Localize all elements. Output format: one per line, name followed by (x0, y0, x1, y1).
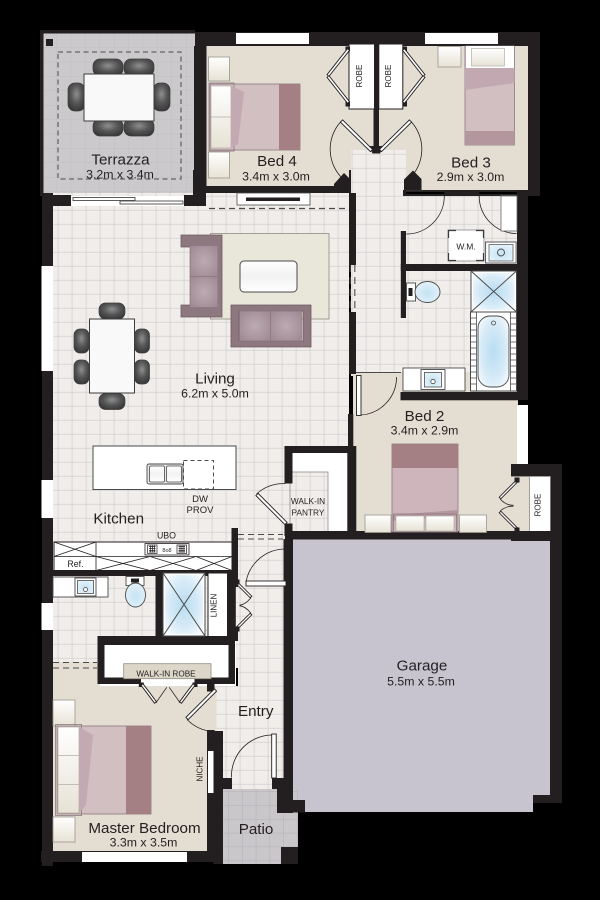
svg-text:8ο8: 8ο8 (162, 548, 171, 554)
svg-text:Ref.: Ref. (67, 559, 83, 569)
svg-text:Terrazza: Terrazza (91, 152, 150, 169)
svg-text:Patio: Patio (239, 821, 274, 838)
svg-text:PANTRY: PANTRY (292, 508, 325, 518)
svg-text:Bed 3: Bed 3 (451, 155, 491, 172)
svg-text:5.5m x 5.5m: 5.5m x 5.5m (387, 675, 455, 689)
svg-text:WALK-IN: WALK-IN (291, 496, 325, 506)
svg-text:DW: DW (192, 494, 208, 505)
svg-text:LINEN: LINEN (210, 593, 219, 617)
svg-text:NICHE: NICHE (196, 757, 205, 782)
svg-text:Living: Living (195, 371, 235, 388)
svg-text:PROV: PROV (187, 505, 215, 516)
svg-text:ROBE: ROBE (384, 65, 393, 88)
svg-text:3.2m x 3.4m: 3.2m x 3.4m (86, 168, 154, 182)
svg-text:3.4m x 3.0m: 3.4m x 3.0m (242, 170, 310, 184)
svg-text:Bed 2: Bed 2 (405, 408, 445, 425)
svg-text:ROBE: ROBE (355, 65, 364, 88)
svg-text:3.4m x 2.9m: 3.4m x 2.9m (391, 424, 459, 438)
svg-text:Garage: Garage (397, 658, 448, 675)
svg-text:ROBE: ROBE (534, 494, 543, 517)
svg-text:UBO: UBO (157, 531, 176, 541)
svg-text:Bed 4: Bed 4 (257, 153, 297, 170)
svg-text:Entry: Entry (238, 703, 274, 720)
svg-text:6.2m x 5.0m: 6.2m x 5.0m (181, 387, 249, 401)
svg-text:WALK-IN ROBE: WALK-IN ROBE (136, 670, 196, 679)
svg-text:3.3m x 3.5m: 3.3m x 3.5m (110, 836, 178, 850)
svg-text:Kitchen: Kitchen (93, 511, 144, 528)
svg-text:W.M.: W.M. (456, 242, 475, 252)
svg-text:Master Bedroom: Master Bedroom (88, 820, 200, 837)
svg-text:2.9m x 3.0m: 2.9m x 3.0m (437, 170, 505, 184)
